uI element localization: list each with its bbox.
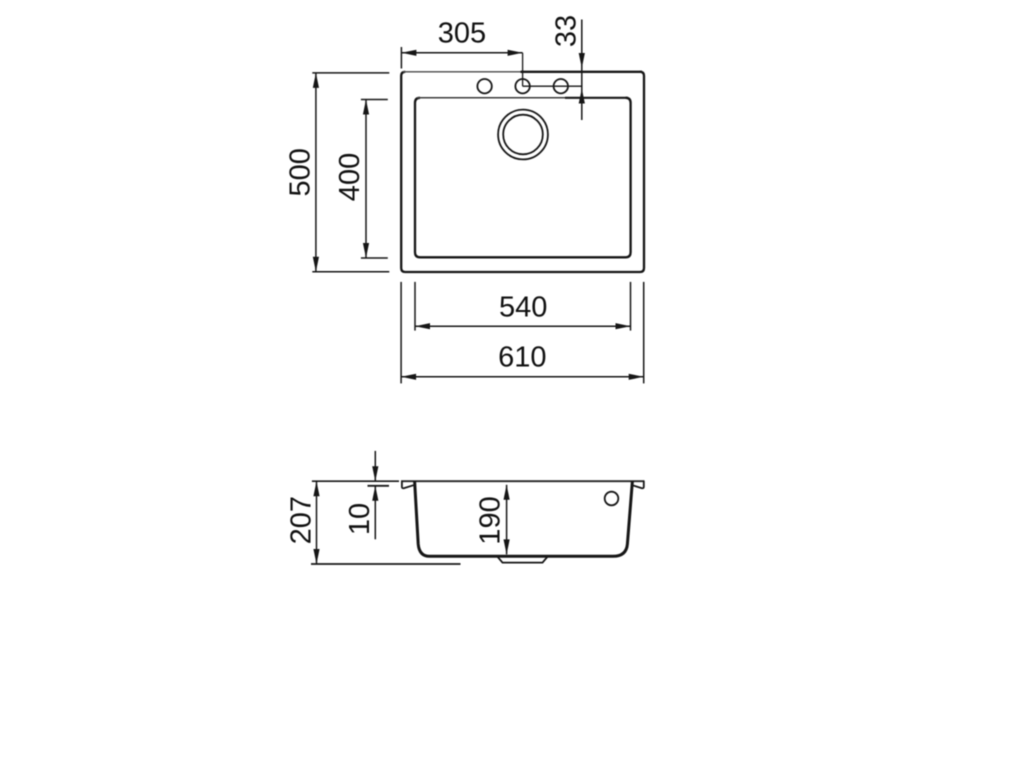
svg-text:305: 305	[438, 18, 486, 50]
svg-text:207: 207	[286, 496, 318, 544]
svg-text:190: 190	[475, 496, 507, 544]
svg-text:500: 500	[285, 148, 317, 196]
svg-text:540: 540	[499, 291, 547, 323]
svg-text:33: 33	[551, 15, 583, 47]
svg-text:610: 610	[498, 341, 546, 373]
svg-text:400: 400	[334, 153, 366, 201]
svg-text:10: 10	[344, 503, 376, 535]
